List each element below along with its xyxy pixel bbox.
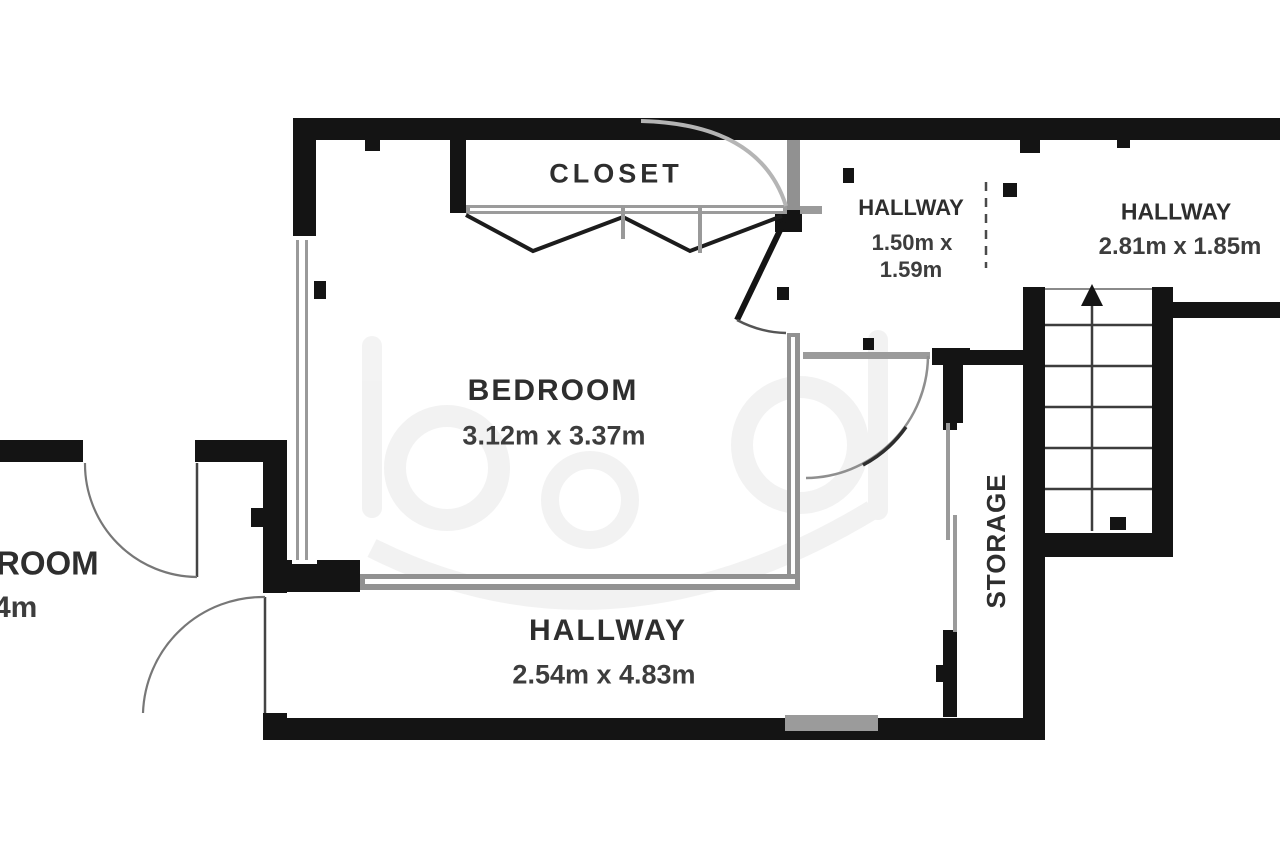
floorplan-canvas: CLOSET BEDROOM 3.12m x 3.37m HALLWAY 1.5…	[0, 0, 1280, 853]
bedroom-door	[641, 121, 786, 333]
left-room-top-door	[85, 463, 197, 577]
closet-label: CLOSET	[549, 161, 683, 188]
left-room-bottom-door	[143, 597, 265, 713]
left-room-partial-label: ROOM	[0, 547, 99, 580]
hallway-small-dimensions-line1: 1.50m x	[872, 232, 953, 254]
hallway-top-right-label: HALLWAY	[1121, 201, 1231, 224]
stairs-up-arrow-icon	[1081, 284, 1103, 306]
bedroom-label: BEDROOM	[468, 376, 639, 406]
storage-label: STORAGE	[983, 473, 1009, 608]
storage-sliding-door	[946, 423, 957, 632]
bedroom-window	[292, 236, 317, 564]
hallway-bottom-dimensions: 2.54m x 4.83m	[512, 662, 695, 689]
bedroom-dimensions: 3.12m x 3.37m	[462, 423, 645, 450]
hallway-small-dimensions-line2: 1.59m	[880, 259, 942, 281]
hallway-bottom-label: HALLWAY	[529, 616, 687, 646]
left-room-partial-dimensions: 4m	[0, 593, 37, 623]
watermark	[362, 330, 888, 600]
hallway-top-right-dimensions: 2.81m x 1.85m	[1099, 235, 1262, 259]
staircase	[1045, 284, 1152, 531]
hallway-small-label: HALLWAY	[858, 197, 964, 219]
